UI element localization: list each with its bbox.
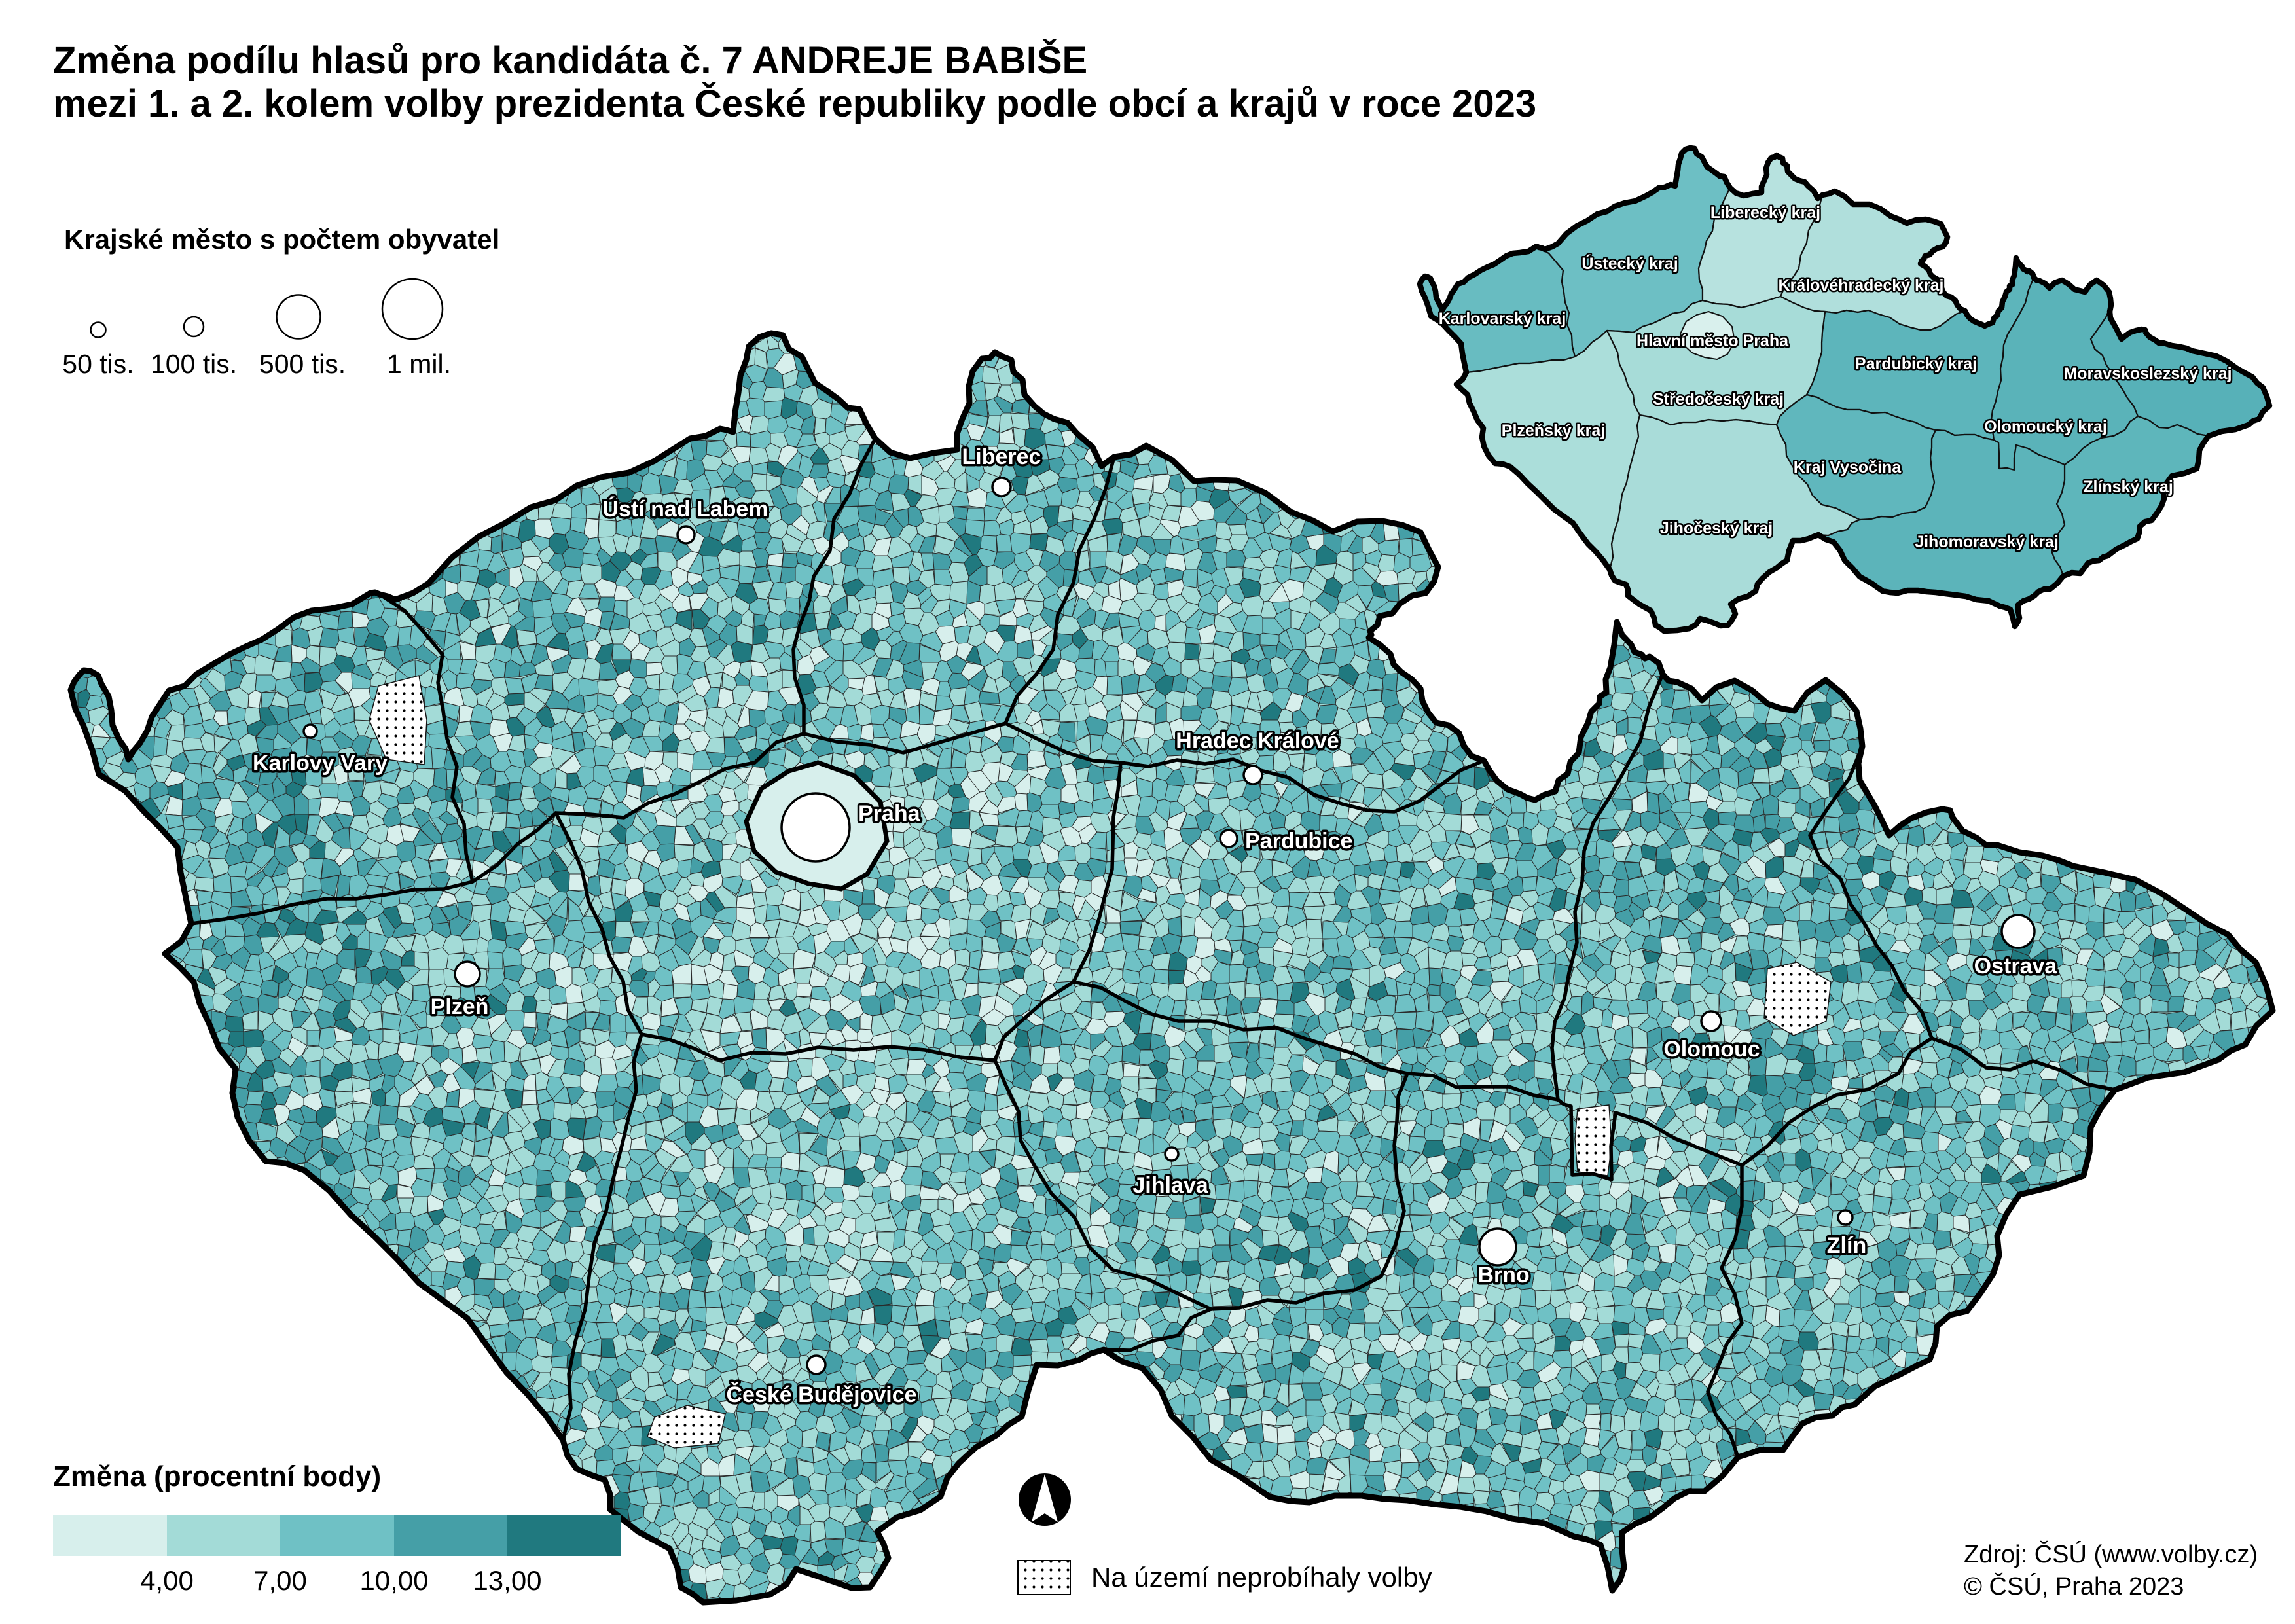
svg-text:Moravskoslezský kraj: Moravskoslezský kraj — [2063, 365, 2232, 383]
svg-text:Liberec: Liberec — [962, 444, 1041, 469]
svg-text:Plzeň: Plzeň — [431, 994, 489, 1019]
svg-text:Ústecký kraj: Ústecký kraj — [1581, 253, 1678, 273]
svg-text:500 tis.: 500 tis. — [259, 349, 346, 379]
svg-text:mezi 1. a 2. kolem volby prezi: mezi 1. a 2. kolem volby prezidenta Česk… — [53, 82, 1536, 125]
svg-text:Krajské město s počtem obyvate: Krajské město s počtem obyvatel — [64, 224, 499, 255]
svg-text:Hlavní město Praha: Hlavní město Praha — [1636, 332, 1789, 350]
svg-text:Liberecký kraj: Liberecký kraj — [1710, 204, 1820, 222]
svg-text:7,00: 7,00 — [253, 1565, 307, 1596]
svg-text:Zdroj: ČSÚ (www.volby.cz): Zdroj: ČSÚ (www.volby.cz) — [1964, 1540, 2258, 1568]
svg-text:© ČSÚ, Praha 2023: © ČSÚ, Praha 2023 — [1964, 1572, 2184, 1600]
svg-text:Královéhradecký kraj: Královéhradecký kraj — [1779, 276, 1944, 295]
svg-text:50 tis.: 50 tis. — [62, 349, 134, 379]
svg-text:Brno: Brno — [1477, 1263, 1529, 1288]
svg-text:100 tis.: 100 tis. — [151, 349, 237, 379]
svg-text:Kraj Vysočina: Kraj Vysočina — [1794, 458, 1902, 477]
svg-text:Ústí nad Labem: Ústí nad Labem — [602, 497, 768, 522]
svg-text:Na území neprobíhaly volby: Na území neprobíhaly volby — [1091, 1562, 1432, 1593]
svg-text:Olomouc: Olomouc — [1663, 1037, 1760, 1062]
svg-text:13,00: 13,00 — [473, 1565, 541, 1596]
svg-text:České Budějovice: České Budějovice — [726, 1382, 916, 1407]
svg-text:Zlínský kraj: Zlínský kraj — [2083, 478, 2173, 496]
svg-text:Karlovarský kraj: Karlovarský kraj — [1439, 310, 1566, 328]
svg-text:Pardubice: Pardubice — [1245, 829, 1352, 854]
svg-text:Jihomoravský kraj: Jihomoravský kraj — [1915, 533, 2059, 551]
svg-text:Praha: Praha — [858, 801, 921, 826]
svg-text:1 mil.: 1 mil. — [387, 349, 451, 379]
svg-text:Zlín: Zlín — [1827, 1233, 1866, 1258]
svg-text:Olomoucký kraj: Olomoucký kraj — [1984, 418, 2107, 436]
svg-text:Karlovy Vary: Karlovy Vary — [253, 751, 388, 776]
svg-text:Plzeňský kraj: Plzeňský kraj — [1502, 422, 1605, 440]
svg-text:4,00: 4,00 — [140, 1565, 194, 1596]
svg-text:10,00: 10,00 — [359, 1565, 428, 1596]
svg-text:Jihlava: Jihlava — [1132, 1173, 1208, 1198]
svg-text:Ostrava: Ostrava — [1974, 954, 2058, 979]
svg-text:Hradec Králové: Hradec Králové — [1176, 729, 1339, 753]
svg-text:Změna (procentní body): Změna (procentní body) — [53, 1460, 381, 1492]
svg-text:Změna podílu hlasů pro kandidá: Změna podílu hlasů pro kandidáta č. 7 AN… — [53, 39, 1087, 82]
svg-text:Jihočeský kraj: Jihočeský kraj — [1660, 519, 1773, 537]
svg-text:Středočeský kraj: Středočeský kraj — [1653, 390, 1784, 408]
svg-text:Pardubický kraj: Pardubický kraj — [1855, 355, 1977, 373]
